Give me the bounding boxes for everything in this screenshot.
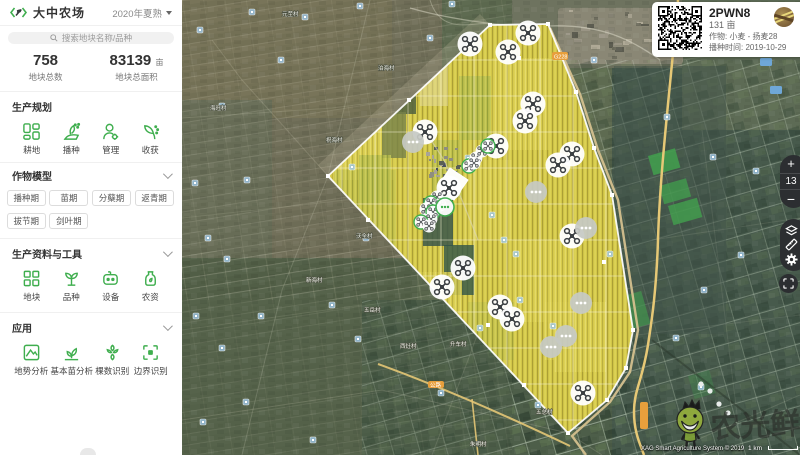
- svg-text:西灶村: 西灶村: [400, 342, 417, 350]
- svg-text:公路: 公路: [430, 381, 442, 389]
- svg-text:农光鲜: 农光鲜: [709, 407, 800, 445]
- svg-text:祝海村: 祝海村: [326, 136, 343, 144]
- svg-text:元茔村: 元茔村: [282, 10, 299, 18]
- svg-text:泊海村: 泊海村: [378, 64, 395, 72]
- svg-text:海旺村: 海旺村: [210, 104, 227, 112]
- svg-text:新海村: 新海村: [306, 276, 323, 284]
- svg-text:五总村: 五总村: [536, 408, 553, 416]
- svg-text:沃全村: 沃全村: [356, 232, 373, 240]
- svg-text:朱明村: 朱明村: [470, 440, 487, 448]
- svg-text:升车村: 升车村: [450, 340, 467, 348]
- svg-text:G228: G228: [554, 55, 567, 61]
- svg-text:五岳村: 五岳村: [364, 306, 381, 314]
